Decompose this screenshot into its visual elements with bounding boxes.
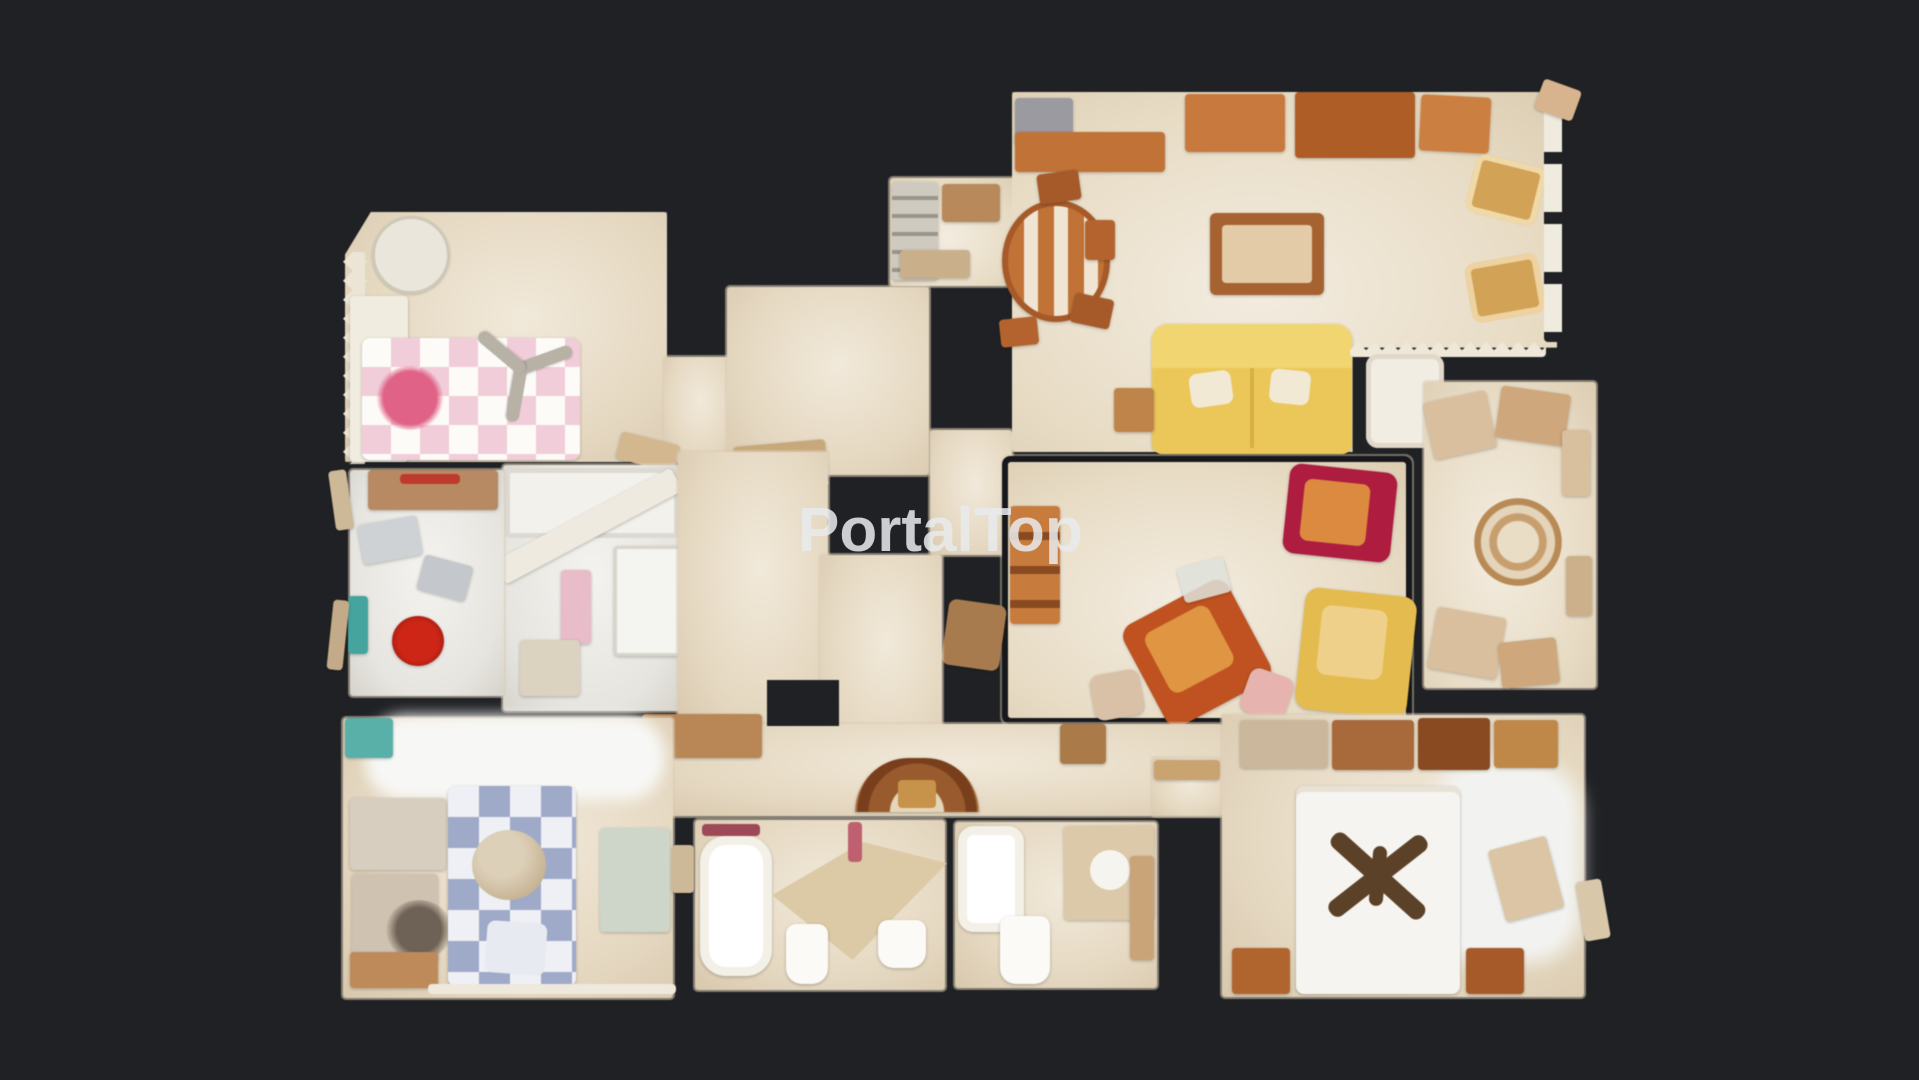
sideboard-wood xyxy=(1015,132,1165,172)
red-basket xyxy=(392,616,444,666)
wicker-chair xyxy=(1495,385,1572,446)
bed-blue-checkered xyxy=(448,786,576,986)
toilet xyxy=(786,924,828,984)
sofa-yellow xyxy=(1152,324,1352,454)
wicker-chair xyxy=(1498,637,1560,689)
coffee-table xyxy=(1210,213,1324,295)
floorplan-canvas[interactable]: PortalTop xyxy=(0,0,1919,1080)
dining-chair xyxy=(1085,220,1115,260)
cabinet xyxy=(1295,92,1415,158)
mesh-debris xyxy=(326,599,349,670)
wardrobe xyxy=(1240,720,1328,768)
side-table xyxy=(1114,388,1154,432)
sofa-pillow xyxy=(1188,369,1234,409)
nightstand xyxy=(1232,948,1290,994)
fridge xyxy=(614,546,684,656)
dining-chair xyxy=(999,316,1040,348)
wall-block xyxy=(767,680,839,726)
wardrobe xyxy=(1418,718,1490,770)
cabinet-small xyxy=(1060,724,1106,764)
bathtub-oval xyxy=(700,836,772,976)
sofa-seam xyxy=(1250,368,1254,448)
dresser xyxy=(350,798,446,870)
wardrobe xyxy=(1332,720,1414,770)
round-table xyxy=(372,216,450,294)
clutter xyxy=(941,598,1008,671)
towel-maroon xyxy=(702,824,760,836)
dark-clutter xyxy=(386,900,452,960)
bidet xyxy=(878,920,926,968)
closet-shelf xyxy=(1154,760,1220,780)
kitchen-table xyxy=(520,640,580,696)
dining-chair xyxy=(1036,169,1082,205)
nightstand xyxy=(1466,948,1524,994)
doormat xyxy=(898,780,936,808)
coffee-table-top xyxy=(1222,225,1312,283)
pillow xyxy=(484,920,547,976)
notes-pink xyxy=(561,570,591,644)
cabinet xyxy=(1419,94,1492,154)
armchair-seat xyxy=(1299,478,1371,547)
pink-blanket xyxy=(374,366,446,430)
threshold-line xyxy=(428,984,676,994)
shelf-wood xyxy=(1130,856,1154,960)
armchair-yellow xyxy=(1294,586,1418,719)
watermark-text: PortalTop xyxy=(798,500,1083,562)
teal-bin xyxy=(348,596,368,654)
armchair-seat xyxy=(1316,604,1389,681)
duvet-ball xyxy=(472,830,546,900)
toilet xyxy=(1000,916,1050,984)
sink xyxy=(1090,850,1130,890)
armchair-crimson xyxy=(1282,463,1399,564)
sofa-pillow xyxy=(1268,368,1311,406)
console-cabinet xyxy=(942,184,1000,222)
wardrobe xyxy=(1494,720,1558,768)
red-streak xyxy=(400,474,460,484)
mesh-debris xyxy=(672,845,694,893)
wood-bits xyxy=(350,952,438,988)
towel-pink xyxy=(848,822,862,862)
stool-beige xyxy=(1088,668,1145,722)
wardrobe-glass xyxy=(600,828,670,932)
cabinet xyxy=(1185,94,1285,152)
clutter xyxy=(900,250,970,278)
shelf-bit xyxy=(1562,430,1590,496)
shelf-bit xyxy=(1566,556,1592,616)
rattan-table-round xyxy=(1468,493,1568,591)
armchair-gold xyxy=(1463,252,1546,324)
wicker-chair xyxy=(1427,606,1507,679)
armchair-seat xyxy=(1142,602,1237,696)
teal-box xyxy=(345,718,393,758)
window-band xyxy=(1544,104,1562,342)
